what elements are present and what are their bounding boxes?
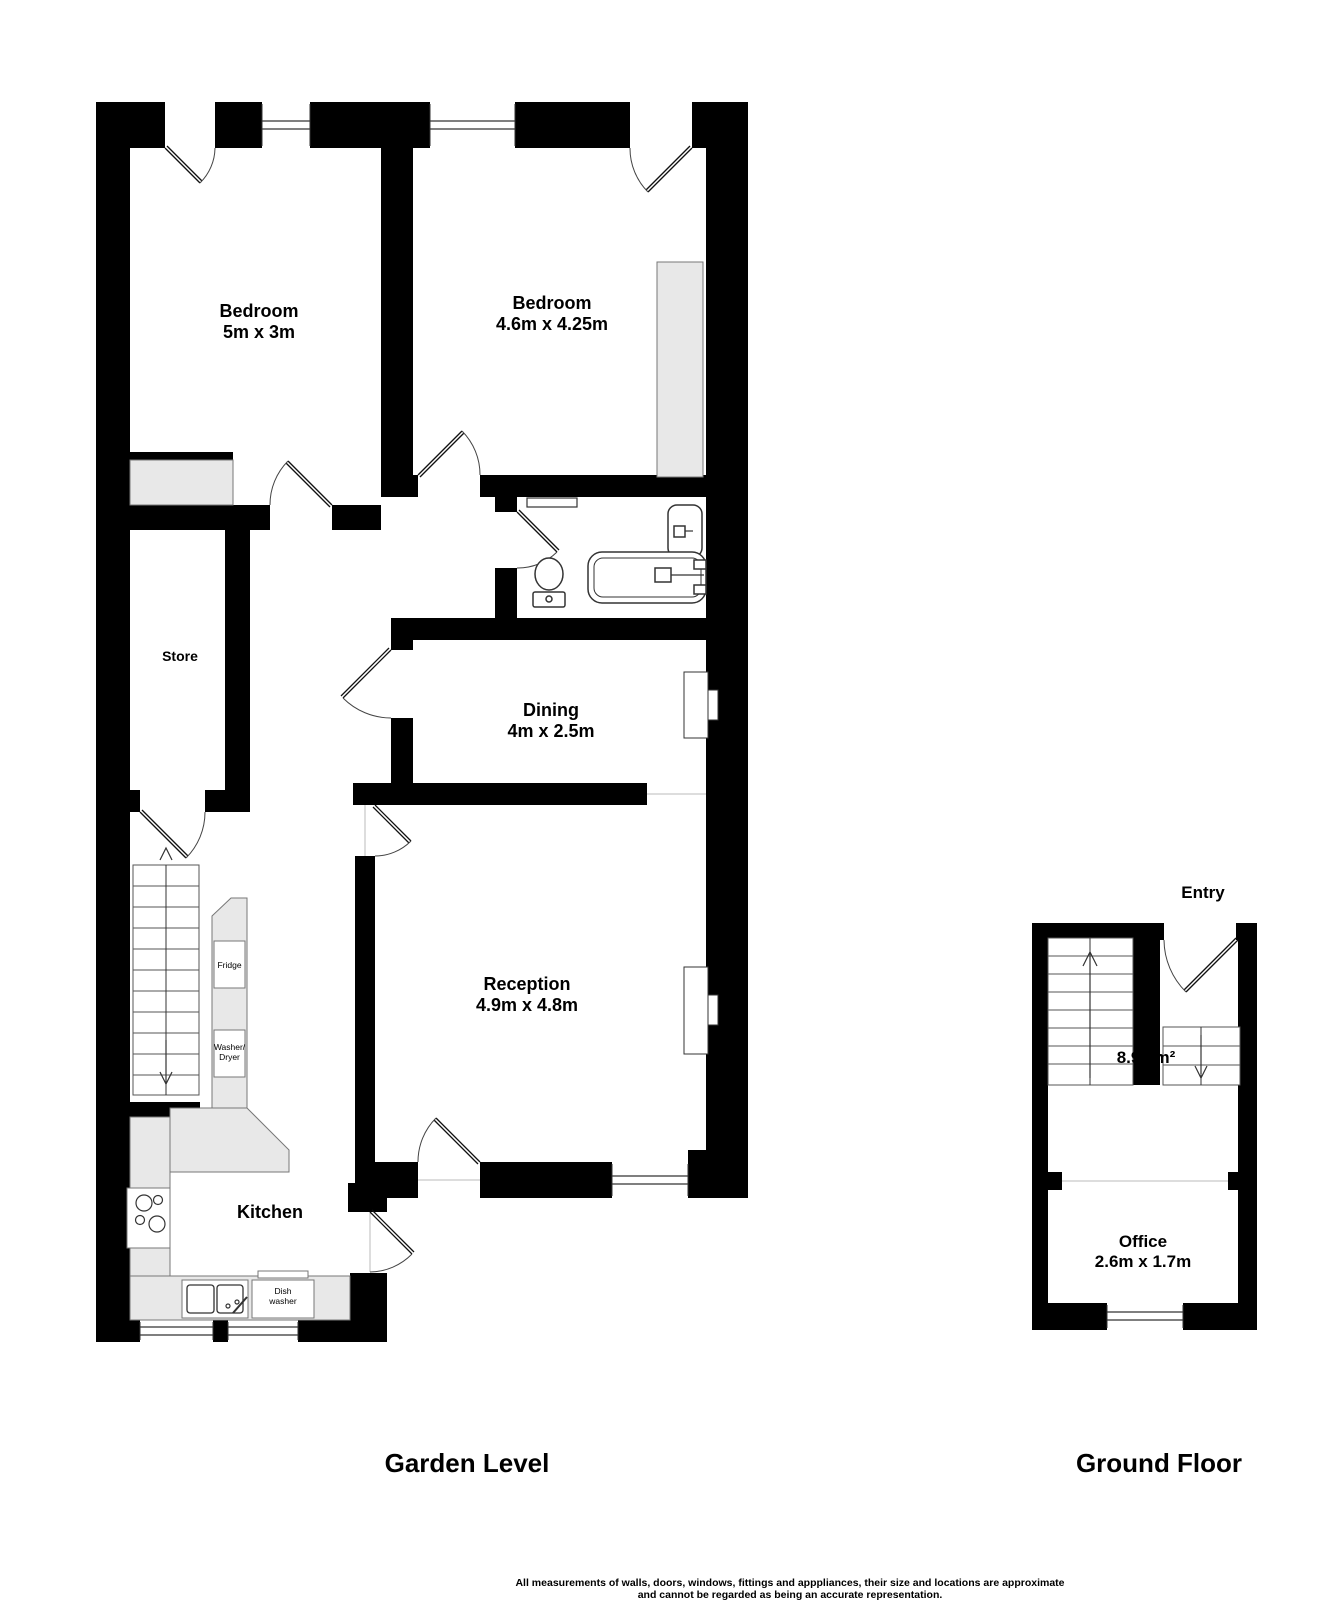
door-swing: [418, 1118, 480, 1164]
disclaimer-line1: All measurements of walls, doors, window…: [515, 1577, 1064, 1589]
floorplan-svg: Bedroom 5m x 3m Bedroom 4.6m x 4.25m Sto…: [0, 0, 1328, 1600]
door-swing: [373, 805, 411, 856]
door-swing: [341, 648, 391, 718]
ground-floor-plan: Entry 8.91 m² Office 2.6m x 1.7m: [1032, 883, 1257, 1330]
sink-icon: [668, 505, 702, 557]
entry-label: Entry: [1181, 883, 1225, 902]
dishwasher-label-line1: Dish: [274, 1286, 291, 1296]
window: [612, 1164, 688, 1196]
door-swing: [630, 146, 692, 192]
store-label: Store: [162, 648, 198, 664]
door-swing: [165, 146, 215, 183]
hob-icon: [127, 1188, 170, 1248]
bedroom2-dims: 4.6m x 4.25m: [496, 314, 608, 334]
window: [140, 1322, 213, 1340]
disclaimer-line2: and cannot be regarded as being an accur…: [638, 1589, 943, 1600]
garden-level-plan: Bedroom 5m x 3m Bedroom 4.6m x 4.25m Sto…: [96, 102, 748, 1342]
garden-level-title: Garden Level: [385, 1448, 550, 1478]
washer-dryer-label-line1: Washer/: [214, 1042, 246, 1052]
window: [1107, 1303, 1183, 1330]
door-swing: [270, 461, 332, 507]
toilet-icon: [533, 558, 565, 607]
office-dims: 2.6m x 1.7m: [1095, 1252, 1191, 1271]
bedroom1-dims: 5m x 3m: [223, 322, 295, 342]
office-label: Office: [1119, 1232, 1167, 1251]
door-swing: [370, 1210, 414, 1272]
window: [262, 104, 310, 146]
ground-floor-title: Ground Floor: [1076, 1448, 1242, 1478]
entry-door-swing: [1164, 938, 1238, 992]
floorplan-canvas: Bedroom 5m x 3m Bedroom 4.6m x 4.25m Sto…: [0, 0, 1328, 1600]
reception-dims: 4.9m x 4.8m: [476, 995, 578, 1015]
bedroom2-label: Bedroom: [512, 293, 591, 313]
door-swing: [418, 431, 480, 477]
fridge-label: Fridge: [217, 960, 241, 970]
window: [228, 1322, 298, 1340]
reception-label: Reception: [483, 974, 570, 994]
mirror-icon: [527, 498, 577, 507]
kitchen-sink-icon: [182, 1280, 248, 1318]
dishwasher-label-line2: washer: [268, 1296, 297, 1306]
bathtub-icon: [588, 552, 706, 603]
bedroom1-chimney-block: [130, 460, 233, 505]
dining-label: Dining: [523, 700, 579, 720]
dining-dims: 4m x 2.5m: [507, 721, 594, 741]
bathroom-fixtures: [527, 498, 706, 607]
washer-dryer-label-line2: Dryer: [219, 1052, 240, 1062]
stair-area-label: 8.91 m²: [1117, 1048, 1176, 1067]
window: [430, 104, 515, 146]
bedroom2-wardrobe: [657, 262, 703, 477]
door-swing: [140, 810, 205, 858]
bedroom1-label: Bedroom: [219, 301, 298, 321]
stairs-icon: [133, 848, 199, 1095]
kitchen-label: Kitchen: [237, 1202, 303, 1222]
